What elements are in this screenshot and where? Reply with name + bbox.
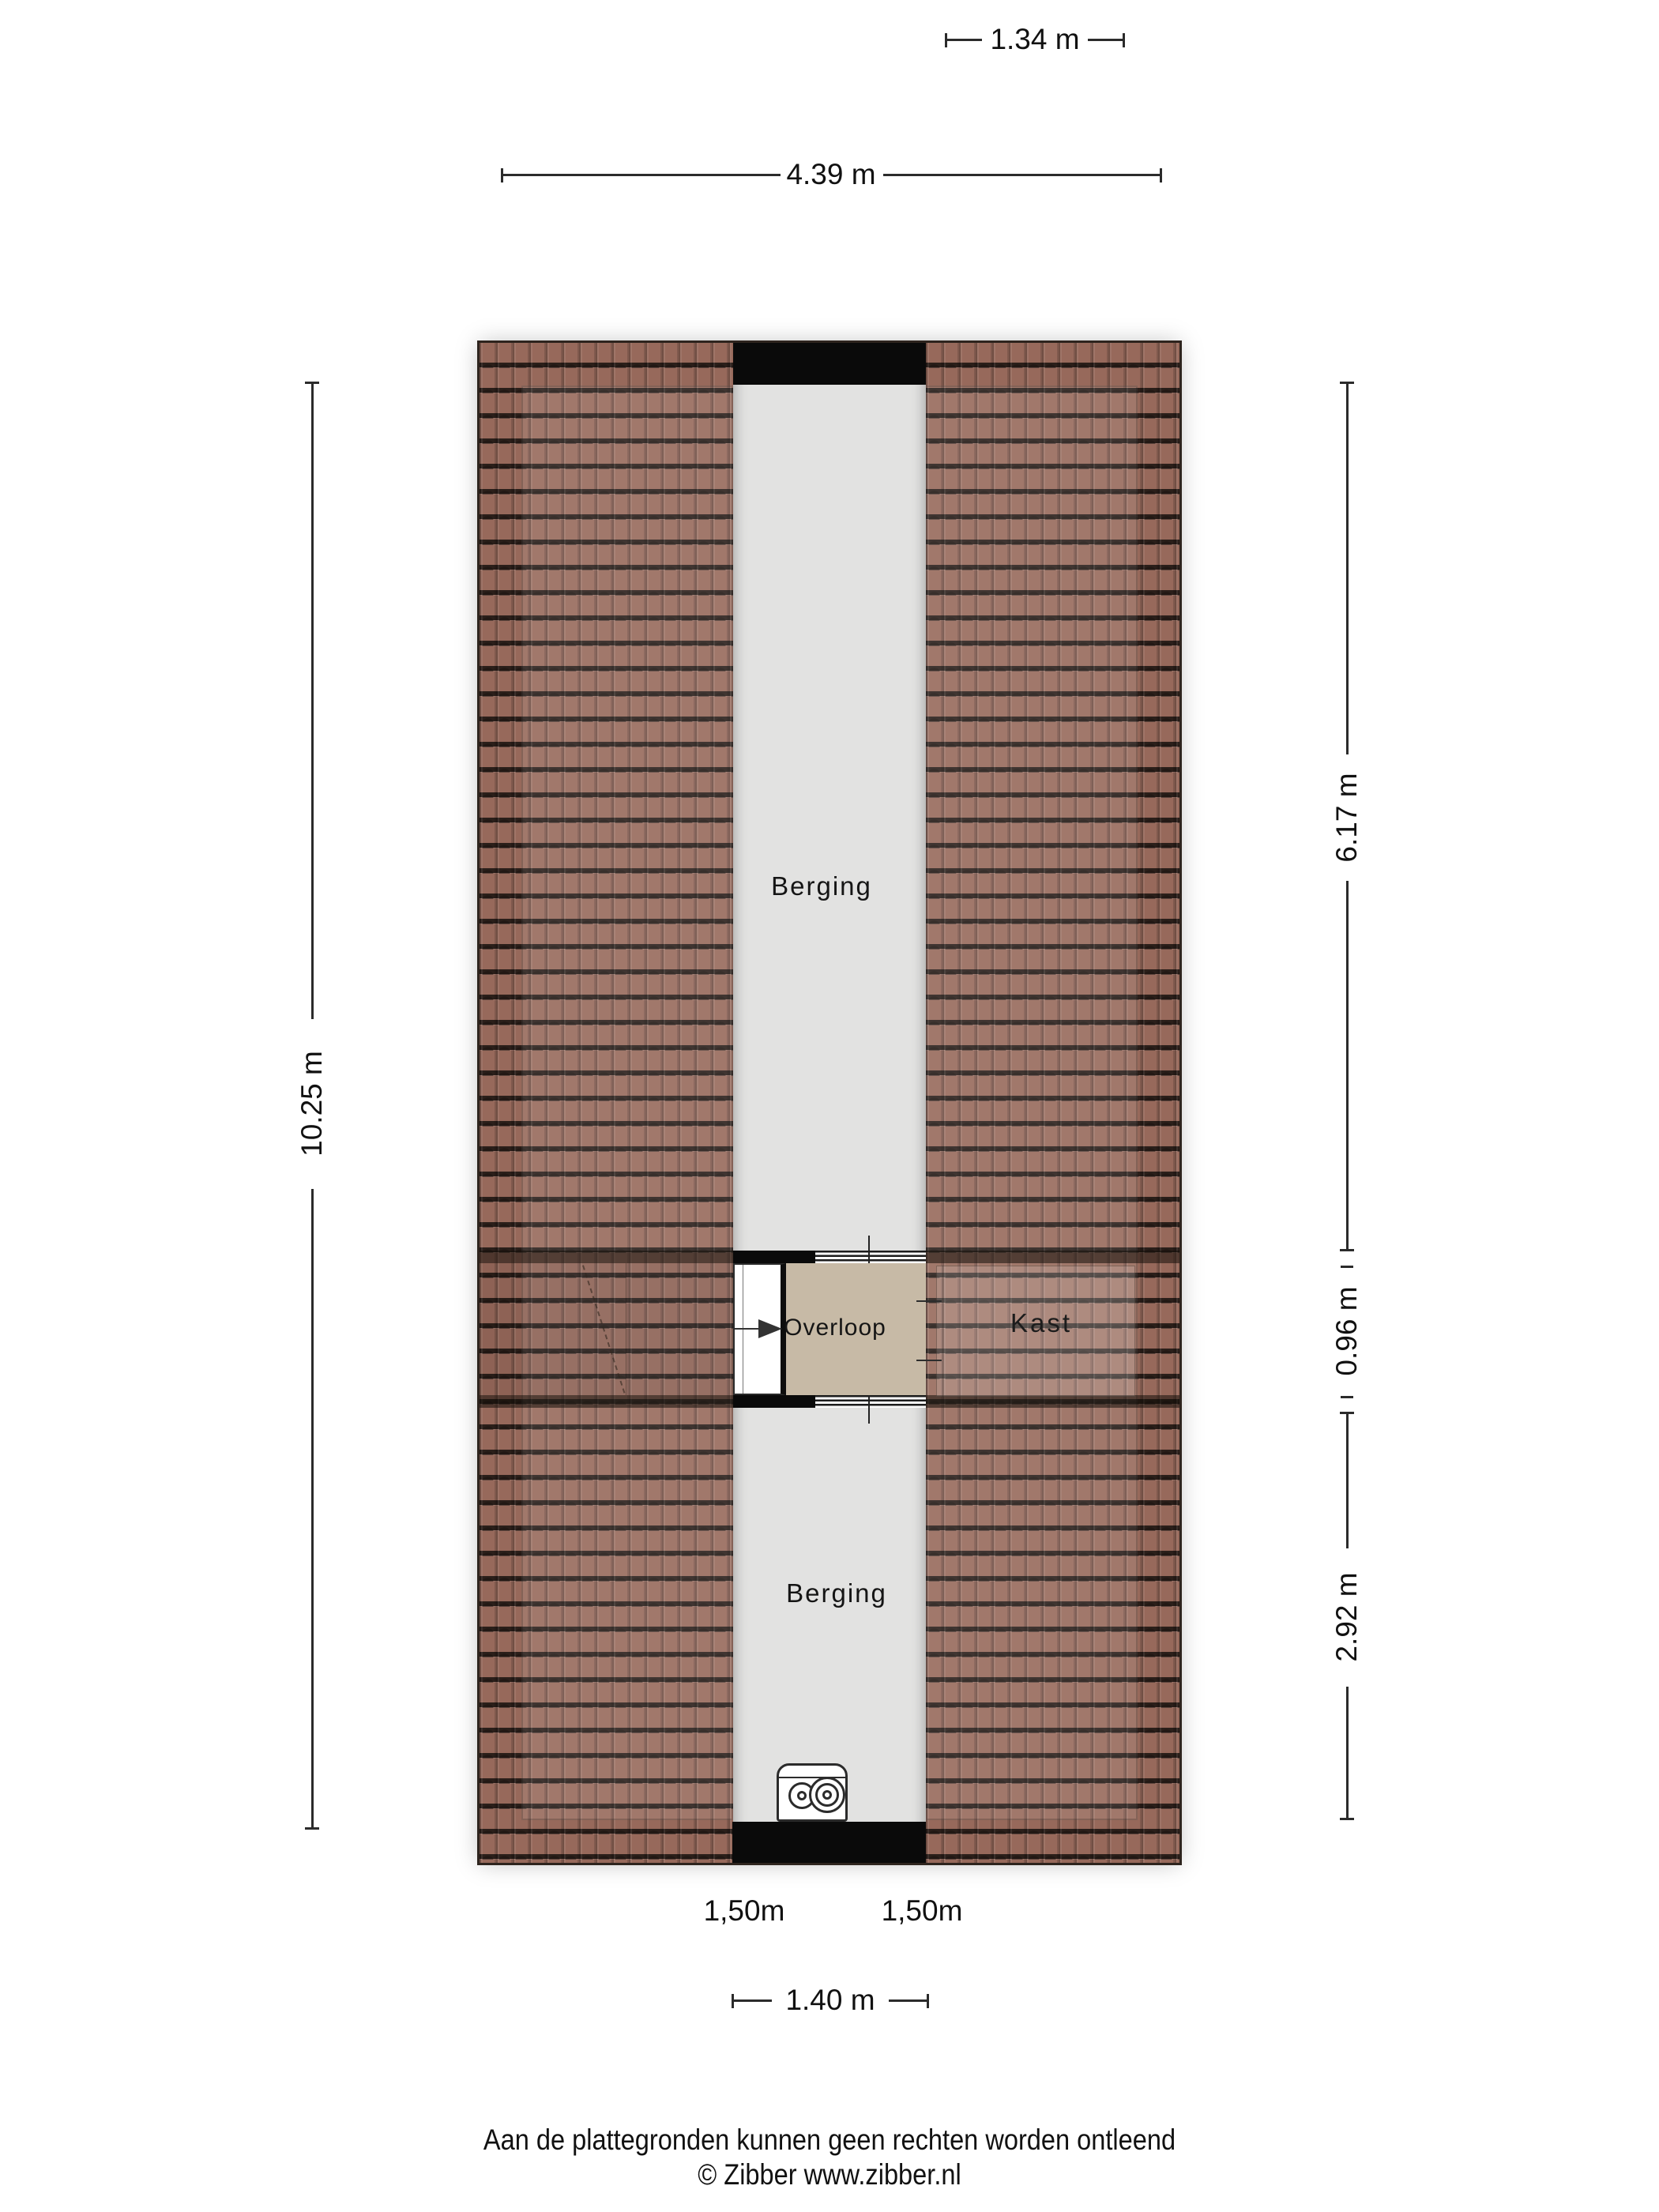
dim-tick	[1340, 1818, 1354, 1820]
roof-left-inner-panel	[521, 386, 733, 1820]
roof-right-inner-panel	[926, 386, 1138, 1820]
dim-line	[1088, 39, 1124, 41]
kast-opening-tick-bottom	[916, 1360, 942, 1361]
corridor-floor	[733, 343, 926, 1863]
dim-label-right-lower: 2.92 m	[1330, 1538, 1364, 1696]
dim-tick	[1340, 1249, 1354, 1251]
boiler-right-dot	[822, 1790, 832, 1800]
mid-wall-roof-right-top	[926, 1251, 1179, 1263]
kast-wall-line	[942, 1266, 943, 1397]
footer-copyright: © Zibber www.zibber.nl	[100, 2158, 1559, 2191]
floor-measurement-right: 1,50m	[859, 1894, 985, 1928]
dim-line	[889, 1999, 928, 2002]
bottom-wall	[732, 1822, 926, 1863]
dim-line	[1346, 1687, 1349, 1819]
dim-label-top-outer: 4.39 m	[768, 157, 894, 192]
footer-disclaimer: Aan de plattegronden kunnen geen rechten…	[100, 2124, 1559, 2157]
room-label-overloop: Overloop	[768, 1312, 902, 1344]
room-label-berging-bottom: Berging	[766, 1578, 908, 1609]
dim-line	[1346, 881, 1349, 1251]
mid-wall-roof-left-bottom	[480, 1395, 733, 1408]
dim-line	[1346, 1414, 1349, 1548]
dim-label-top-inner: 1.34 m	[972, 22, 1098, 57]
dim-label-bottom: 1.40 m	[767, 1983, 893, 2018]
stairs-direction-arrow-shaft	[735, 1328, 760, 1330]
dim-tick	[1341, 1396, 1353, 1398]
dim-line	[502, 174, 781, 176]
door-opening-top	[815, 1251, 926, 1263]
floor-measurement-left: 1,50m	[681, 1894, 807, 1928]
boiler-left-dot	[797, 1791, 807, 1800]
dim-tick	[927, 1994, 929, 2008]
dim-line	[883, 174, 1161, 176]
dim-tick	[305, 1827, 319, 1830]
room-label-kast: Kast	[978, 1307, 1104, 1339]
dim-tick	[1123, 33, 1125, 47]
boiler-right-ring	[809, 1777, 845, 1813]
overloop-top-wall	[733, 1251, 815, 1263]
roof-right-panel	[926, 343, 1179, 1863]
left-roof-band-shading	[480, 1263, 733, 1395]
dim-line	[311, 384, 314, 1019]
dim-label-right-middle: 0.96 m	[1330, 1252, 1364, 1410]
dim-label-right-upper: 6.17 m	[1330, 739, 1364, 897]
dim-line	[732, 1999, 772, 2002]
overloop-bottom-wall	[733, 1395, 815, 1408]
mid-wall-roof-right-bottom	[926, 1395, 1179, 1408]
boiler-right-mid-ring	[815, 1783, 839, 1807]
dim-line	[1346, 384, 1349, 754]
door-opening-bottom	[815, 1395, 926, 1408]
dim-line	[311, 1189, 314, 1829]
mid-wall-roof-left-top	[480, 1251, 733, 1263]
room-label-berging-top: Berging	[750, 871, 893, 902]
dim-label-left: 10.25 m	[295, 1025, 329, 1183]
top-wall	[733, 343, 926, 385]
floorplan-building: Overloop Kast Berging Berging	[480, 343, 1179, 1863]
kast-opening-tick-top	[916, 1300, 942, 1302]
roof-left-panel	[480, 343, 733, 1863]
dim-tick	[1160, 168, 1162, 182]
left-roof-wall-line	[626, 1263, 626, 1395]
boiler-icon	[777, 1763, 848, 1822]
